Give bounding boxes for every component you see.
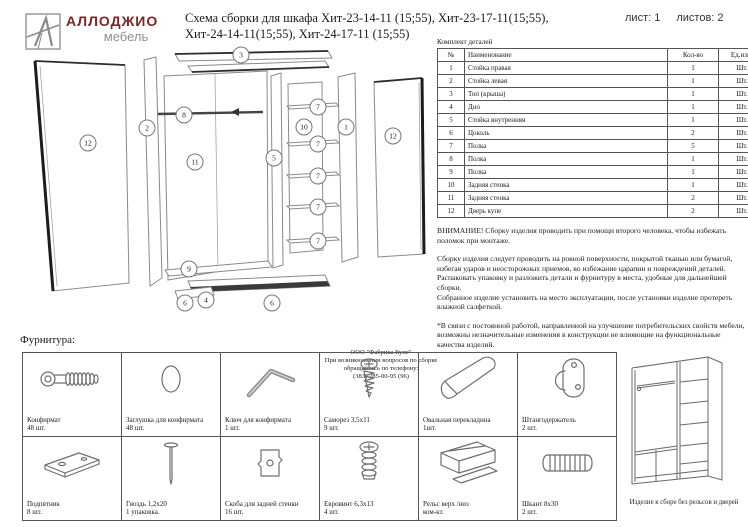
warning-note: ВНИМАНИЕ! Сборку изделия проводить при п…: [437, 226, 745, 245]
parts-cell: 1: [668, 179, 719, 192]
hardware-label: Ключ для конфирмата1 шт.: [225, 416, 317, 433]
hardware-label: Конфирмат48 шт.: [27, 416, 119, 433]
sheet-info: лист: 1 листов: 2: [625, 12, 743, 24]
col-name: Наименование: [465, 49, 668, 62]
parts-cell: Шт.: [719, 62, 748, 75]
parts-table-row: 3Топ (крыша)1Шт.: [438, 88, 748, 101]
parts-cell: 2: [668, 127, 719, 140]
parts-cell: Шт.: [719, 114, 748, 127]
parts-cell: 1: [668, 88, 719, 101]
hardware-name: Скоба для задней стенки: [225, 500, 317, 509]
hardware-label: Гвоздь 1,2х201 упаковка.: [126, 500, 218, 517]
hardware-label: Скоба для задней стенки16 шт.: [225, 500, 317, 517]
hardware-cell: Скоба для задней стенки16 шт.: [221, 437, 320, 521]
hardware-cell: Овальная перекладина1шт.: [419, 353, 518, 437]
hardware-qty: ком-кт.: [423, 508, 515, 517]
hardware-table: Конфирмат48 шт. Заглушка для конфирмата4…: [22, 352, 617, 521]
parts-cell: 2: [438, 75, 465, 88]
disclaimer-note: *В связи с постоянной работой, направлен…: [437, 321, 745, 350]
parts-cell: Дно: [465, 101, 668, 114]
hexkey-icon: [221, 353, 319, 405]
cap-icon: [122, 353, 220, 405]
parts-cell: Стойка внутренняя: [465, 114, 668, 127]
hardware-qty: 48 шт.: [27, 424, 119, 433]
parts-cell: 5: [668, 140, 719, 153]
diagram-callout: 1: [338, 119, 355, 136]
parts-cell: 4: [438, 101, 465, 114]
parts-cell: Шт.: [719, 205, 748, 218]
hardware-name: Штангодержатель: [522, 416, 614, 425]
hardware-qty: 1 шт.: [225, 424, 317, 433]
hardware-qty: 48 шт.: [126, 424, 218, 433]
parts-table-header-row: № Наименование Кол-во Ед.изм.: [438, 49, 748, 62]
parts-cell: 10: [438, 179, 465, 192]
parts-cell: 1: [668, 114, 719, 127]
hardware-label: Евровинт 6,3х134 шт.: [324, 500, 416, 517]
exploded-assembly-diagram: 1223811510777771129646 ООО "Фабрика Купе…: [25, 48, 430, 340]
parts-cell: 8: [438, 153, 465, 166]
hardware-qty: 4 шт.: [324, 508, 416, 517]
parts-table-row: 8Полка1Шт.: [438, 153, 748, 166]
parts-table-row: 7Полка5Шт.: [438, 140, 748, 153]
assembled-wardrobe-drawing: [622, 352, 744, 492]
oval-rail-icon: [419, 353, 517, 405]
hardware-cell: Гвоздь 1,2х201 упаковка.: [122, 437, 221, 521]
hardware-qty: 8 шт.: [27, 508, 119, 517]
hardware-qty: 9 шт.: [324, 424, 416, 433]
parts-cell: Задняя стенка: [465, 179, 668, 192]
hardware-label: Подпятник8 шт.: [27, 500, 119, 517]
parts-table-row: 6Цоколь2Шт.: [438, 127, 748, 140]
parts-cell: Шт.: [719, 127, 748, 140]
parts-cell: 1: [668, 101, 719, 114]
diagram-callout: 7: [310, 168, 327, 185]
page-title-line1: Схема сборки для шкафа Хит-23-14-11 (15;…: [185, 10, 575, 26]
parts-cell: 1: [668, 166, 719, 179]
parts-cell: Шт.: [719, 153, 748, 166]
hardware-caption: Фурнитура:: [20, 334, 75, 346]
diagram-callout: 6: [264, 295, 281, 312]
hardware-label: Штангодержатель2 шт.: [522, 416, 614, 433]
parts-cell: Полка: [465, 140, 668, 153]
hardware-cell: Ключ для конфирмата1 шт.: [221, 353, 320, 437]
parts-cell: Шт.: [719, 192, 748, 205]
brand-logo-mark: [25, 13, 61, 50]
assembly-notes: ВНИМАНИЕ! Сборку изделия проводить при п…: [437, 226, 745, 359]
exploded-diagram-drawing: [25, 48, 430, 340]
parts-cell: 1: [438, 62, 465, 75]
parts-cell: 1: [668, 153, 719, 166]
brand-text: АЛЛОДЖИО мебель: [66, 13, 186, 44]
hardware-label: Заглушка для конфирмата48 шт.: [126, 416, 218, 433]
parts-cell: 1: [668, 62, 719, 75]
sheets-total: листов: 2: [676, 12, 723, 24]
hardware-name: Подпятник: [27, 500, 119, 509]
parts-cell: Шт.: [719, 140, 748, 153]
foot-pad-icon: [23, 437, 121, 489]
hardware-cell: Рельс верх /низком-кт.: [419, 437, 518, 521]
parts-table-row: 10Задняя стенка1Шт.: [438, 179, 748, 192]
assembled-view: Изделие в сборе без рельсов и дверей: [622, 352, 746, 506]
hardware-label: Овальная перекладина1шт.: [423, 416, 515, 433]
diagram-callout: 4: [198, 292, 215, 309]
diagram-callout: 10: [296, 119, 313, 136]
parts-table-row: 2Стойка левая1Шт.: [438, 75, 748, 88]
parts-cell: 3: [438, 88, 465, 101]
confirmat-icon: [23, 353, 121, 405]
parts-table-caption: Комплект деталей: [437, 38, 492, 46]
hardware-cell: Шкант 8х302 шт.: [518, 437, 617, 521]
parts-cell: Полка: [465, 153, 668, 166]
parts-cell: 11: [438, 192, 465, 205]
hardware-name: Саморез 3,5х11: [324, 416, 416, 425]
parts-cell: Стойка правая: [465, 62, 668, 75]
parts-cell: Шт.: [719, 179, 748, 192]
hardware-name: Гвоздь 1,2х20: [126, 500, 218, 509]
nail-icon: [122, 437, 220, 489]
col-number: №: [438, 49, 465, 62]
hardware-qty: 1шт.: [423, 424, 515, 433]
parts-table-row: 11Задняя стенка2Шт.: [438, 192, 748, 205]
hardware-name: Евровинт 6,3х13: [324, 500, 416, 509]
hardware-cell: Заглушка для конфирмата48 шт.: [122, 353, 221, 437]
hardware-qty: 1 упаковка.: [126, 508, 218, 517]
assembly-sheet-page: АЛЛОДЖИО мебель Схема сборки для шкафа Х…: [0, 0, 748, 527]
diagram-callout: 2: [139, 120, 156, 137]
parts-table-row: 9Полка1Шт.: [438, 166, 748, 179]
screw-small-icon: [320, 353, 418, 405]
parts-table: № Наименование Кол-во Ед.изм. 1Стойка пр…: [437, 48, 748, 218]
parts-cell: Шт.: [719, 166, 748, 179]
diagram-callout: 12: [80, 135, 97, 152]
parts-cell: Задняя стенка: [465, 192, 668, 205]
page-title: Схема сборки для шкафа Хит-23-14-11 (15;…: [185, 10, 575, 42]
parts-cell: 7: [438, 140, 465, 153]
page-title-line2: Хит-24-14-11(15;55), Хит-24-17-11 (15;55…: [185, 26, 575, 42]
hardware-name: Конфирмат: [27, 416, 119, 425]
parts-cell: 12: [438, 205, 465, 218]
diagram-callout: 6: [177, 295, 194, 312]
diagram-callout: 7: [310, 136, 327, 153]
parts-cell: 6: [438, 127, 465, 140]
hardware-cell: Конфирмат48 шт.: [23, 353, 122, 437]
parts-table-row: 12Дверь купе2Шт.: [438, 205, 748, 218]
parts-cell: Дверь купе: [465, 205, 668, 218]
diagram-callout: 9: [181, 261, 198, 278]
rail-profile-icon: [419, 437, 517, 489]
parts-table-row: 4Дно1Шт.: [438, 101, 748, 114]
hardware-name: Овальная перекладина: [423, 416, 515, 425]
hardware-label: Шкант 8х302 шт.: [522, 500, 614, 517]
parts-cell: 1: [668, 75, 719, 88]
parts-cell: Шт.: [719, 88, 748, 101]
sheet-number: лист: 1: [625, 12, 660, 24]
diagram-callout: 7: [310, 99, 327, 116]
diagram-callout: 7: [310, 199, 327, 216]
hardware-qty: 2 шт.: [522, 508, 614, 517]
assembled-caption: Изделие в сборе без рельсов и дверей: [622, 499, 746, 506]
rod-holder-icon: [518, 353, 616, 405]
parts-cell: Стойка левая: [465, 75, 668, 88]
parts-cell: Полка: [465, 166, 668, 179]
diagram-callout: 11: [187, 154, 204, 171]
hardware-cell: Штангодержатель2 шт.: [518, 353, 617, 437]
diagram-callout: 8: [176, 107, 193, 124]
diagram-callout: 7: [310, 233, 327, 250]
brand-sub: мебель: [66, 29, 186, 44]
diagram-callout: 12: [385, 128, 402, 145]
hardware-cell: Евровинт 6,3х134 шт.: [320, 437, 419, 521]
brand-name: АЛЛОДЖИО: [66, 13, 186, 29]
hardware-cell: Подпятник8 шт.: [23, 437, 122, 521]
hardware-name: Шкант 8х30: [522, 500, 614, 509]
handling-note: Сборку изделия следует проводить на ровн…: [437, 254, 745, 312]
parts-cell: 2: [668, 192, 719, 205]
hardware-qty: 2 шт.: [522, 424, 614, 433]
euro-screw-icon: [320, 437, 418, 489]
parts-cell: 5: [438, 114, 465, 127]
diagram-callout: 5: [266, 150, 283, 167]
parts-cell: 2: [668, 205, 719, 218]
col-unit: Ед.изм.: [719, 49, 748, 62]
hardware-name: Ключ для конфирмата: [225, 416, 317, 425]
bracket-icon: [221, 437, 319, 489]
hardware-cell: Саморез 3,5х119 шт.: [320, 353, 419, 437]
parts-cell: Шт.: [719, 75, 748, 88]
parts-cell: 9: [438, 166, 465, 179]
hardware-label: Саморез 3,5х119 шт.: [324, 416, 416, 433]
hardware-name: Рельс верх /низ: [423, 500, 515, 509]
col-quantity: Кол-во: [668, 49, 719, 62]
hardware-qty: 16 шт.: [225, 508, 317, 517]
hardware-label: Рельс верх /низком-кт.: [423, 500, 515, 517]
parts-table-row: 1Стойка правая1Шт.: [438, 62, 748, 75]
parts-cell: Топ (крыша): [465, 88, 668, 101]
parts-table-row: 5Стойка внутренняя1Шт.: [438, 114, 748, 127]
hardware-name: Заглушка для конфирмата: [126, 416, 218, 425]
parts-cell: Цоколь: [465, 127, 668, 140]
parts-cell: Шт.: [719, 101, 748, 114]
diagram-callout: 3: [233, 47, 250, 64]
dowel-icon: [518, 437, 616, 489]
